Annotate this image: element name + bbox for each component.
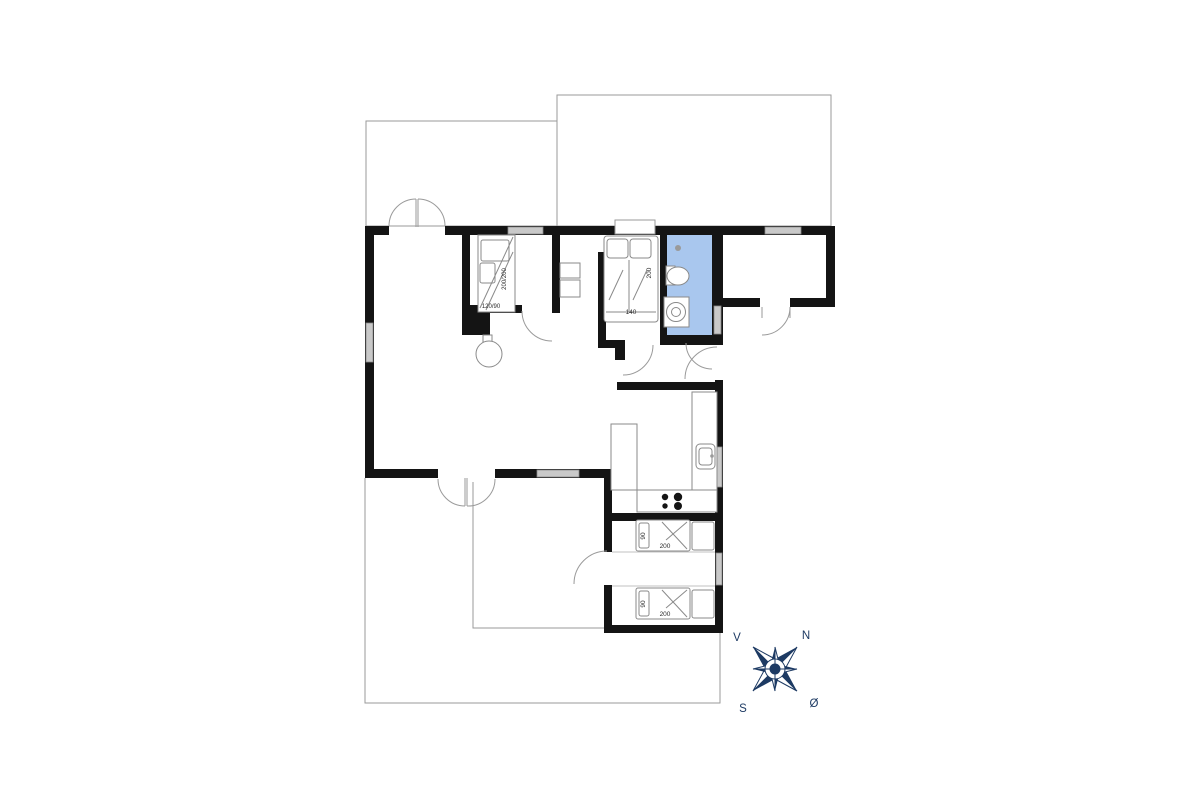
- door-bedroom2: [623, 345, 653, 375]
- wall-bedroom1-east: [552, 234, 560, 307]
- french-door-south: [438, 478, 495, 506]
- terrace-top-right: [557, 95, 831, 226]
- wall-wing-south: [604, 625, 723, 633]
- compass-label-south: S: [739, 703, 747, 715]
- bathroom-sink: [666, 266, 689, 285]
- door-entry-room: [762, 307, 790, 335]
- single-bed-2: [636, 588, 714, 619]
- wall-bedroom1-corner: [552, 305, 560, 313]
- nightstand-1: [692, 522, 714, 550]
- nightstand-2: [692, 590, 714, 618]
- label-bed1-size: 120/90: [482, 304, 501, 310]
- window-livingroom-south: [537, 470, 579, 477]
- label-doublebed-length: 200: [646, 267, 653, 278]
- terrace-outlines: [365, 95, 831, 703]
- door-hall-entrance: [685, 347, 717, 379]
- compass-label-east: Ø: [810, 698, 819, 710]
- window-livingroom-west: [366, 323, 373, 362]
- door-bedroom-wing: [574, 551, 607, 584]
- window-bathroom-east: [714, 306, 721, 334]
- floor-plan-drawing: 200/200 120/90 200 140 90 200 90 200: [0, 0, 1200, 800]
- wall-south-livingroom-a: [365, 469, 438, 478]
- wood-stove: [476, 335, 502, 367]
- window-wing-east: [716, 553, 722, 585]
- shower-head: [675, 245, 681, 251]
- bunk-bed: [478, 235, 515, 312]
- toilet: [664, 297, 689, 327]
- label-doublebed-width: 140: [626, 309, 637, 316]
- closet-shelves: [560, 263, 580, 297]
- wall-wing-west-b: [604, 585, 612, 633]
- window-bedroom2-north: [615, 220, 655, 234]
- kitchen-counter-east: [692, 392, 717, 490]
- windows: [366, 220, 801, 585]
- compass-star: [753, 647, 797, 691]
- door-bathroom: [686, 343, 712, 369]
- wall-entry-east: [826, 226, 835, 307]
- wall-hall-stub: [615, 340, 625, 360]
- compass-rose: N V S Ø: [733, 630, 818, 715]
- label-bed4-width: 90: [640, 600, 647, 608]
- single-bed-1: [636, 520, 714, 551]
- doors: [389, 199, 790, 584]
- kitchen-fixtures: [611, 392, 717, 512]
- label-bunk-size: 200/200: [502, 268, 508, 290]
- floor-plan-page: 200/200 120/90 200 140 90 200 90 200: [0, 0, 1200, 800]
- wall-kitchen-north: [617, 382, 723, 390]
- wall-bedroom1-west: [462, 234, 470, 313]
- door-bedroom1: [522, 311, 552, 341]
- kitchen-sink: [696, 444, 715, 469]
- walls: [365, 226, 835, 633]
- compass-label-west: V: [733, 632, 741, 644]
- label-bed3-width: 90: [640, 532, 647, 540]
- window-entry-north: [765, 227, 801, 234]
- label-bed4-length: 200: [660, 611, 671, 618]
- kitchen-cabinet: [611, 424, 637, 490]
- french-door-north: [389, 199, 445, 227]
- terrace-bottom-outline: [473, 482, 606, 628]
- label-bed3-length: 200: [660, 543, 671, 550]
- wall-bathroom-south: [660, 335, 718, 345]
- wing-partitions: [612, 552, 715, 586]
- compass-label-north: N: [802, 630, 810, 642]
- window-bedroom1-north: [508, 227, 543, 234]
